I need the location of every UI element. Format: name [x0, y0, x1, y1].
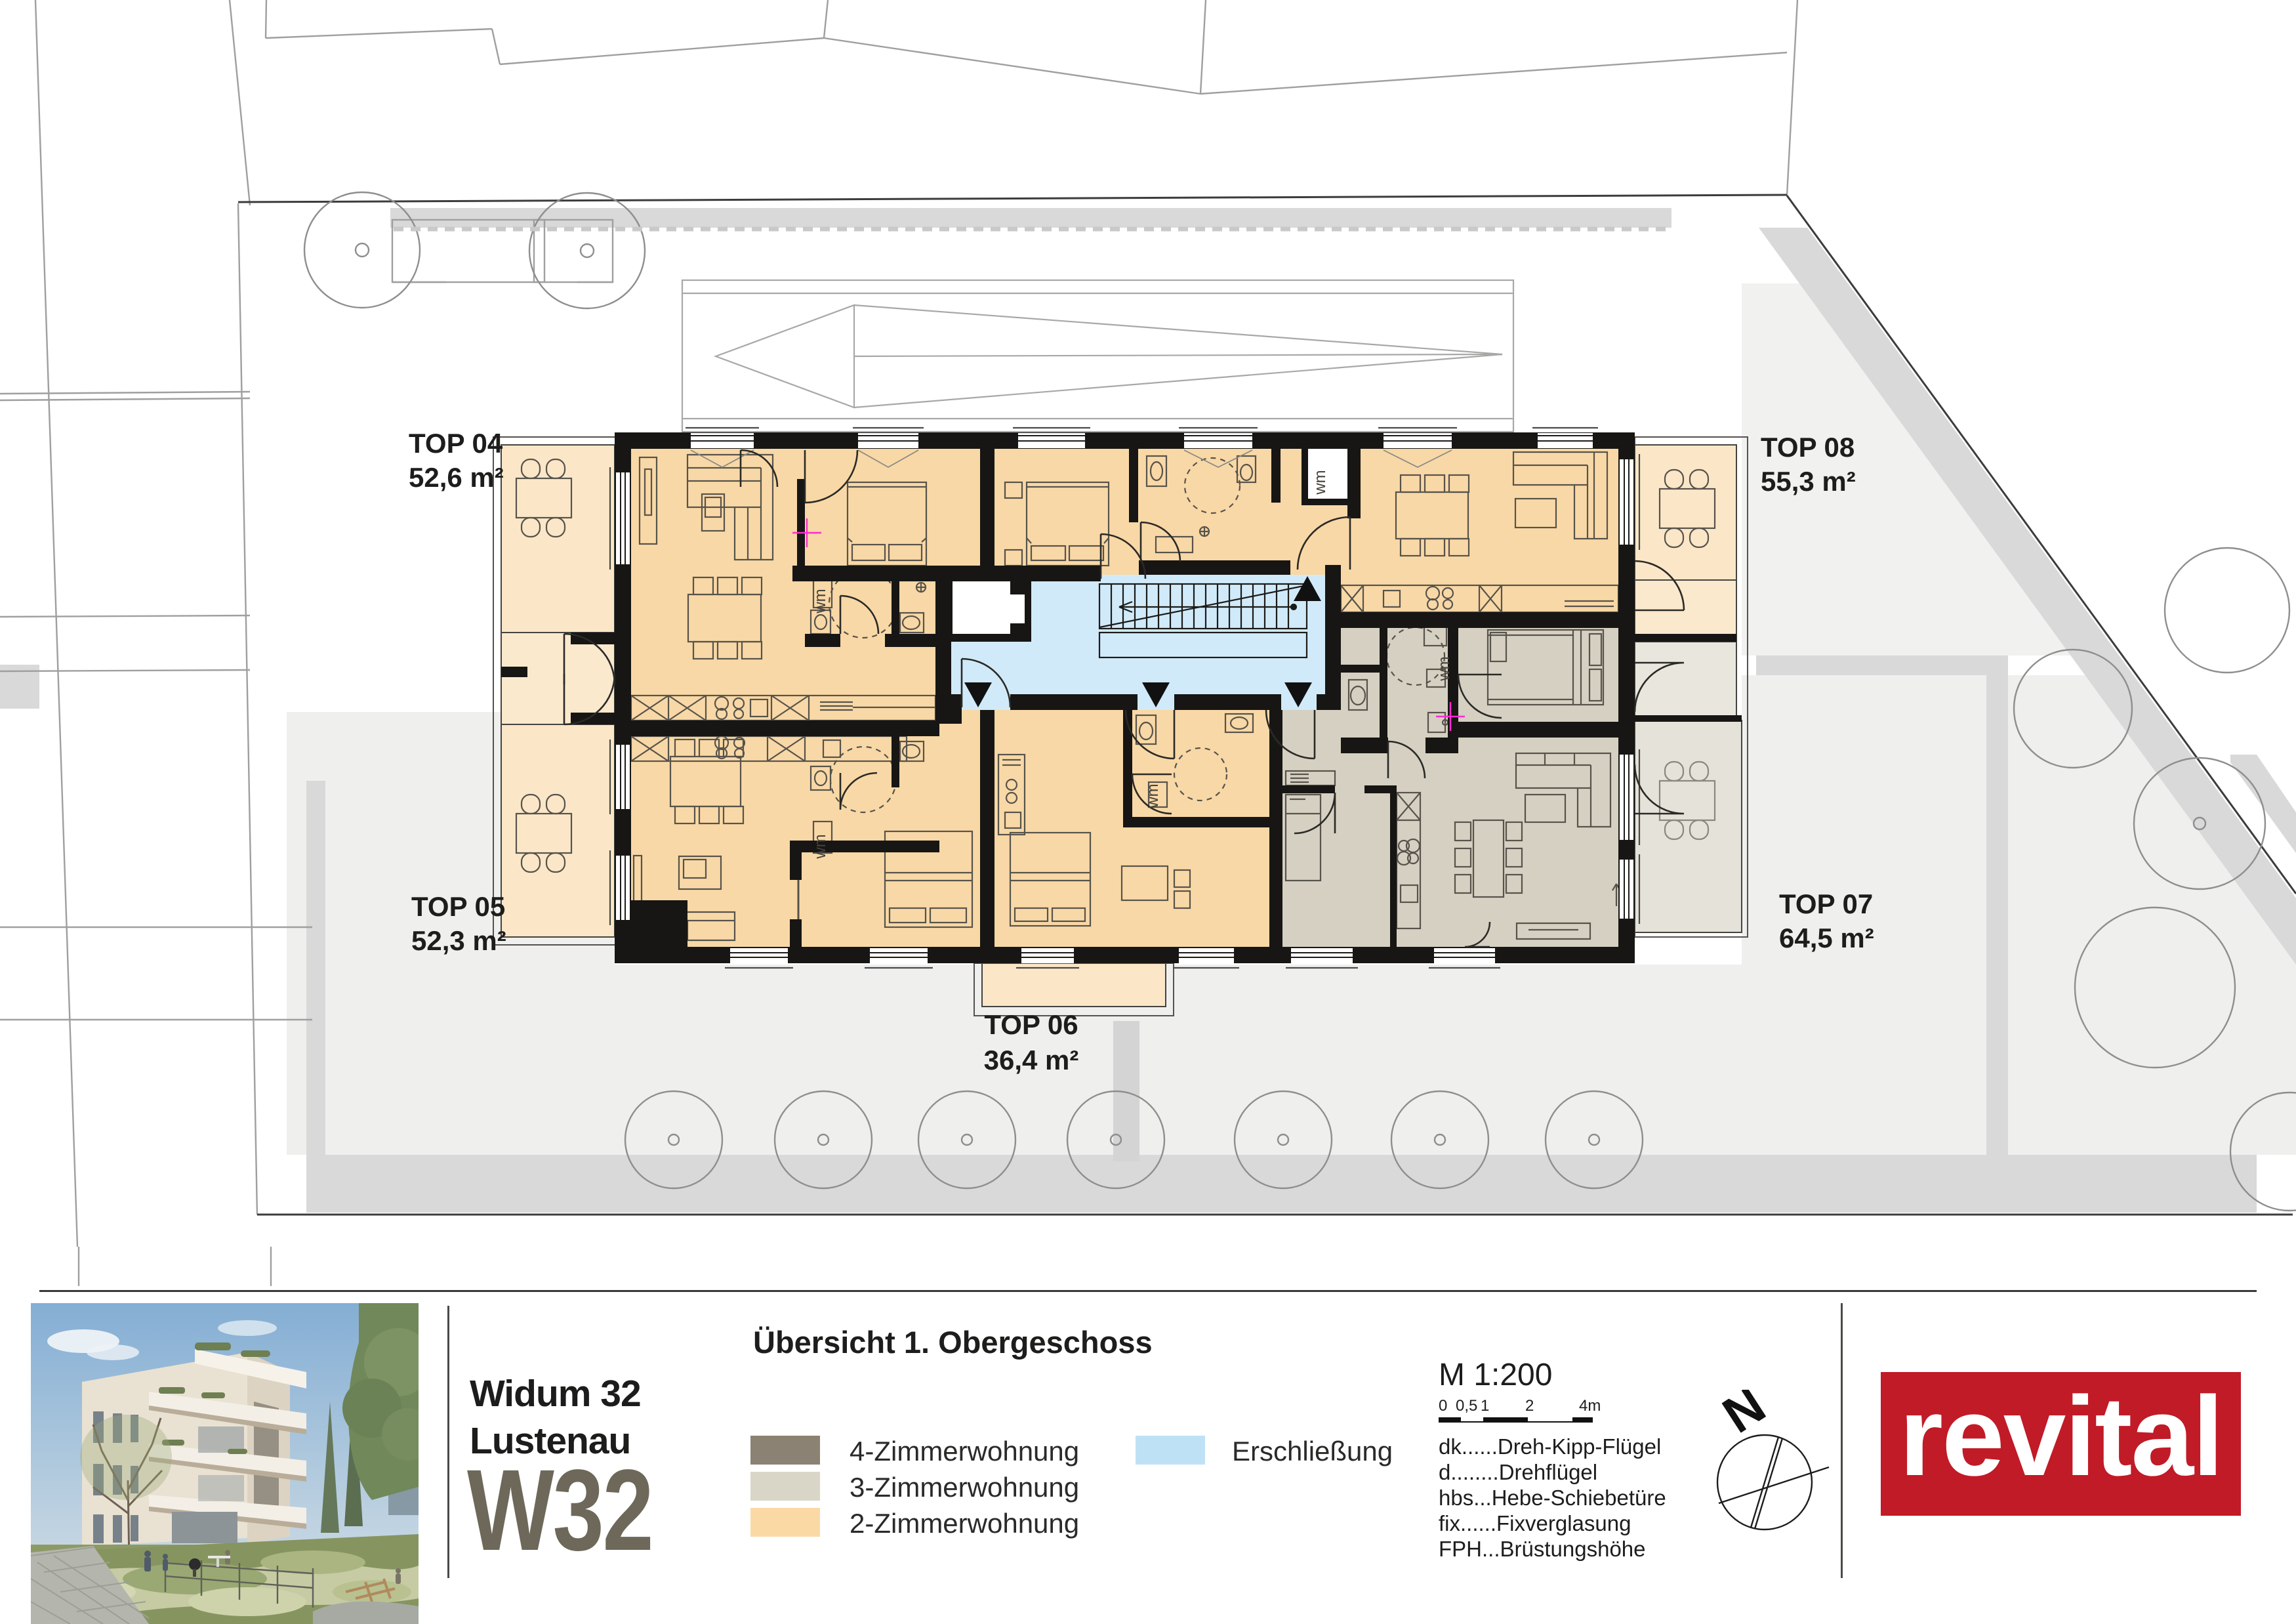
svg-text:TOP 05: TOP 05 — [411, 891, 505, 922]
svg-text:TOP 04: TOP 04 — [409, 428, 503, 459]
svg-text:0,5: 0,5 — [1456, 1397, 1477, 1415]
svg-text:2: 2 — [1525, 1397, 1534, 1415]
svg-text:55,3 m²: 55,3 m² — [1761, 466, 1856, 497]
svg-text:wm: wm — [1144, 783, 1162, 808]
svg-text:TOP 07: TOP 07 — [1779, 888, 1873, 919]
svg-text:0: 0 — [1439, 1397, 1447, 1415]
svg-text:wm: wm — [811, 834, 829, 859]
svg-text:52,6 m²: 52,6 m² — [409, 462, 504, 493]
svg-text:4m: 4m — [1579, 1397, 1601, 1415]
svg-text:wm: wm — [811, 589, 829, 614]
svg-text:1: 1 — [1481, 1397, 1489, 1415]
svg-text:52,3 m²: 52,3 m² — [411, 925, 506, 956]
svg-text:wm: wm — [1311, 470, 1329, 495]
svg-text:36,4 m²: 36,4 m² — [984, 1045, 1079, 1075]
svg-text:wm: wm — [1435, 656, 1453, 681]
svg-text:TOP 06: TOP 06 — [984, 1009, 1078, 1040]
svg-text:64,5 m²: 64,5 m² — [1779, 923, 1874, 953]
svg-text:TOP 08: TOP 08 — [1761, 432, 1855, 463]
svg-text:N: N — [1713, 1390, 1775, 1444]
